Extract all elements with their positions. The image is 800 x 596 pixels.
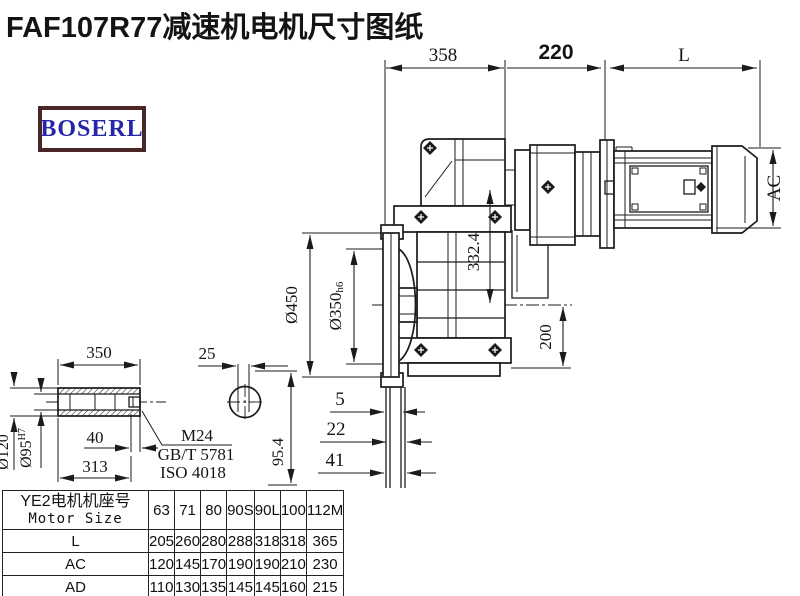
dim-bore-length: 313: [82, 457, 108, 476]
input-adapter: [512, 140, 614, 298]
dim-bore: Ø95H7: [17, 428, 35, 468]
cell: 288: [227, 530, 255, 553]
header-cn: YE2电机机座号: [3, 492, 148, 511]
row-label: AD: [3, 576, 149, 596]
gearbox-housing: [394, 139, 515, 376]
dim-flange-t2: 22: [327, 419, 346, 440]
cell: 210: [280, 553, 306, 576]
cell: 145: [175, 553, 201, 576]
cell: 318: [280, 530, 306, 553]
dim-base-height: 200: [536, 324, 555, 350]
dim-flange-t1: 5: [335, 389, 345, 410]
motor: [605, 146, 757, 233]
drawing-page: FAF107R77减速机电机尺寸图纸 BOSERL: [0, 0, 800, 596]
dim-shaft-length: 350: [86, 343, 112, 362]
cell: 145: [254, 576, 280, 596]
row-label: L: [3, 530, 149, 553]
cell: 260: [175, 530, 201, 553]
dim-center-distance: 332.4: [464, 232, 483, 271]
dim-thread-depth: 40: [87, 428, 104, 447]
dim-motor-height: AC: [764, 175, 785, 201]
dim-gearbox-width: 358: [429, 45, 458, 66]
cell: 215: [306, 576, 343, 596]
shaft-detail: 350 M24 GB/T 5781 ISO 4018 40 313: [0, 343, 234, 482]
table-row: AC 120 145 170 190 190 210 230: [3, 553, 344, 576]
motor-size-table: YE2电机机座号 Motor Size 63 71 80 90S 90L 100…: [2, 490, 344, 596]
cell: 135: [201, 576, 227, 596]
cell: 205: [149, 530, 175, 553]
size-col: 80: [201, 491, 227, 530]
cell: 145: [227, 576, 255, 596]
size-col: 112M: [306, 491, 343, 530]
cell: 110: [149, 576, 175, 596]
label-standard2: ISO 4018: [160, 463, 226, 482]
flange-thickness-dims: 5 22 41 95.4: [255, 371, 436, 485]
cell: 190: [254, 553, 280, 576]
table-row: L 205 260 280 288 318 318 365: [3, 530, 344, 553]
dim-key-width: 25: [199, 344, 216, 363]
cell: 160: [280, 576, 306, 596]
dim-shaft-od: Ø120: [0, 434, 12, 470]
dim-side-height: 95.4: [270, 438, 287, 466]
size-col: 90S: [227, 491, 255, 530]
dim-motor-length: L: [678, 45, 690, 66]
table-header-motor-size: YE2电机机座号 Motor Size: [3, 491, 149, 530]
flange-diameter-dims: Ø450 Ø350h6: [282, 233, 383, 377]
header-en: Motor Size: [3, 511, 148, 528]
label-thread: M24: [181, 426, 214, 445]
cell: 130: [175, 576, 201, 596]
size-col: 63: [149, 491, 175, 530]
dim-spigot: Ø350h6: [326, 281, 346, 330]
size-col: 71: [175, 491, 201, 530]
table-header-row: YE2电机机座号 Motor Size 63 71 80 90S 90L 100…: [3, 491, 344, 530]
shaft-end-view: 25: [198, 344, 288, 418]
size-col: 100: [280, 491, 306, 530]
dim-flange-t3: 41: [326, 450, 345, 471]
cell: 318: [254, 530, 280, 553]
label-standard1: GB/T 5781: [158, 445, 235, 464]
cell: 230: [306, 553, 343, 576]
table-row: AD 110 130 135 145 145 160 215: [3, 576, 344, 596]
cell: 365: [306, 530, 343, 553]
cell: 120: [149, 553, 175, 576]
cell: 280: [201, 530, 227, 553]
cell: 190: [227, 553, 255, 576]
cell: 170: [201, 553, 227, 576]
row-label: AC: [3, 553, 149, 576]
dim-adapter-width: 220: [538, 41, 573, 64]
dim-flange-od: Ø450: [282, 286, 301, 324]
size-col: 90L: [254, 491, 280, 530]
